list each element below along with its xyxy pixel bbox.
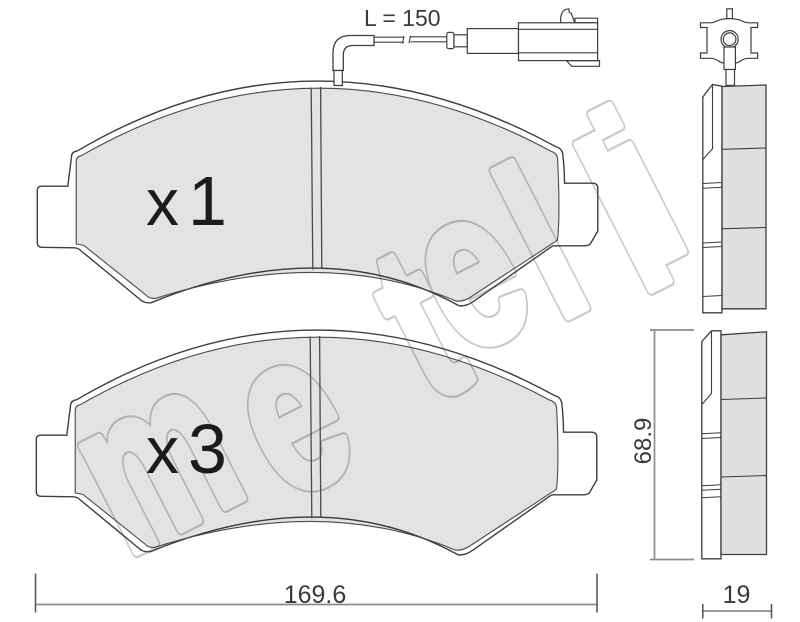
svg-text:3: 3 (188, 410, 227, 488)
svg-text:1: 1 (188, 162, 227, 240)
svg-text:x: x (146, 165, 179, 239)
svg-text:L = 150: L = 150 (364, 5, 441, 31)
svg-text:19: 19 (723, 581, 751, 609)
svg-text:68.9: 68.9 (630, 418, 657, 465)
svg-text:x: x (146, 413, 179, 487)
svg-text:169.6: 169.6 (284, 581, 347, 609)
